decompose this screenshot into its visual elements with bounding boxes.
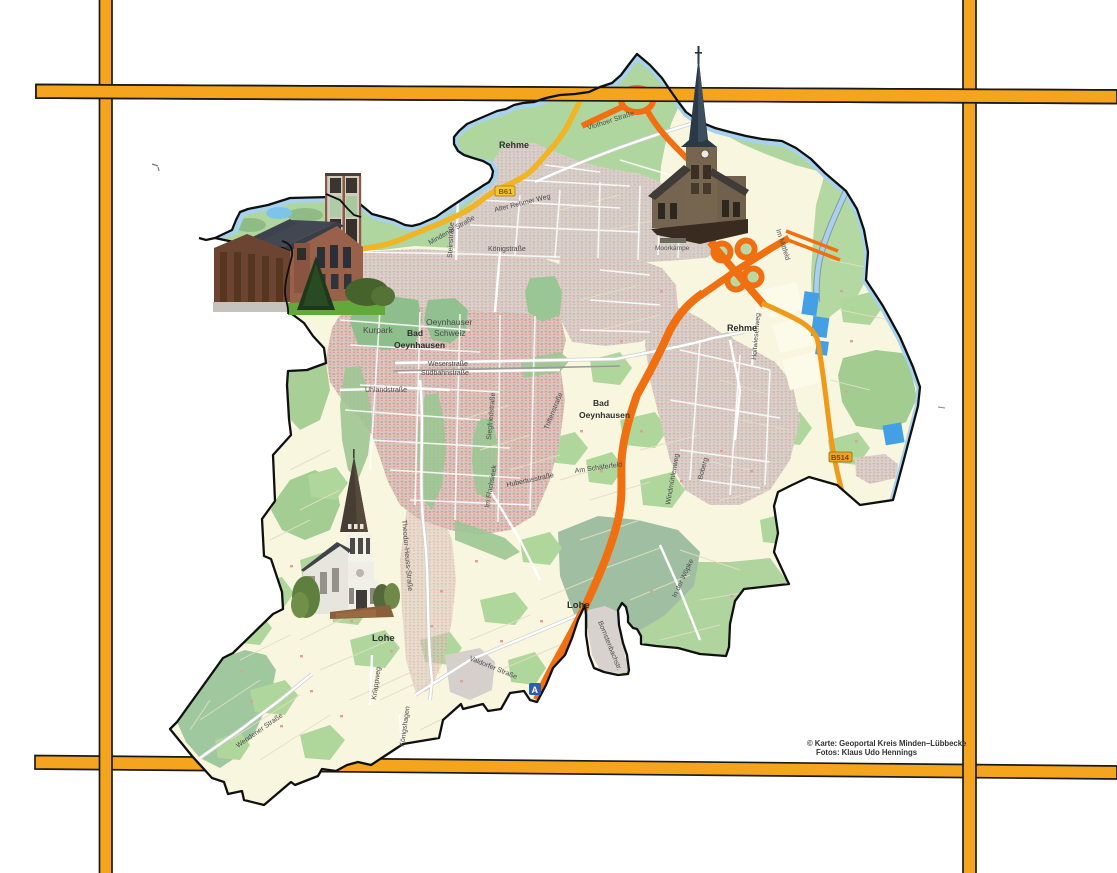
svg-text:© Karte: Geoportal Kreis Minde: © Karte: Geoportal Kreis Minden–Lübbecke bbox=[807, 739, 967, 748]
svg-text:Bad: Bad bbox=[407, 328, 423, 338]
svg-text:Fotos: Klaus Udo Hennings: Fotos: Klaus Udo Hennings bbox=[816, 748, 918, 757]
svg-text:Oeynhausen: Oeynhausen bbox=[579, 410, 630, 420]
svg-text:Kurpark: Kurpark bbox=[363, 325, 394, 335]
svg-text:Rehme: Rehme bbox=[499, 140, 529, 150]
svg-text:Südbahnstraße: Südbahnstraße bbox=[421, 370, 469, 377]
svg-text:Oeynhauser: Oeynhauser bbox=[426, 317, 472, 327]
svg-text:Uhlandstraße: Uhlandstraße bbox=[365, 387, 407, 394]
svg-text:B61: B61 bbox=[499, 187, 513, 196]
svg-text:Oeynhausen: Oeynhausen bbox=[394, 340, 445, 350]
svg-text:Moorkämpe: Moorkämpe bbox=[655, 245, 690, 252]
svg-text:Schweiz: Schweiz bbox=[434, 328, 466, 338]
svg-text:A: A bbox=[532, 685, 539, 695]
svg-text:B514: B514 bbox=[831, 453, 850, 462]
svg-text:Lohe: Lohe bbox=[372, 633, 395, 644]
svg-text:Königstraße: Königstraße bbox=[488, 246, 526, 253]
svg-text:Weserstraße: Weserstraße bbox=[428, 361, 468, 368]
svg-text:Bad: Bad bbox=[593, 398, 609, 408]
svg-text:Lohe: Lohe bbox=[567, 600, 590, 611]
